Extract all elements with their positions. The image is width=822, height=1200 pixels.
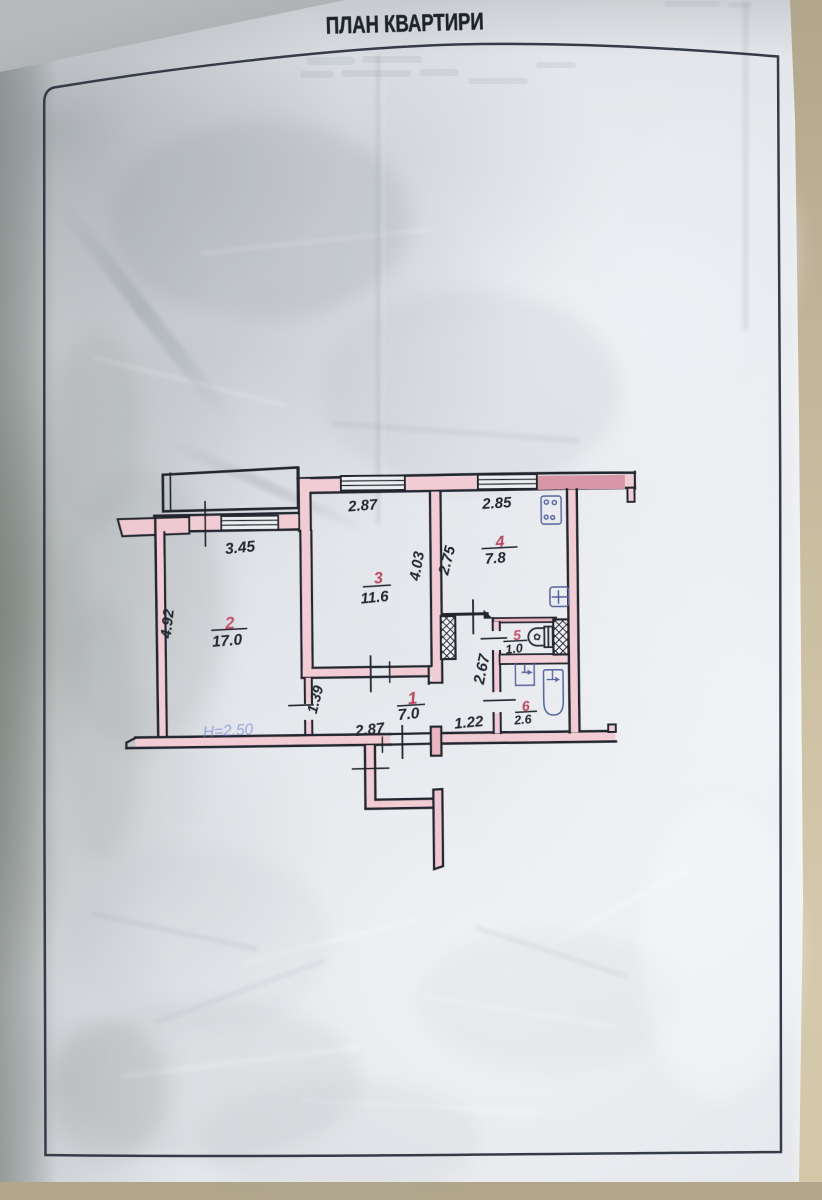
svg-text:ПЛАН КВАРТИРИ: ПЛАН КВАРТИРИ [325,8,484,39]
svg-text:2.67: 2.67 [471,651,494,686]
svg-text:3.45: 3.45 [224,538,256,558]
svg-text:4.03: 4.03 [406,550,428,583]
svg-text:H=2.50: H=2.50 [202,721,254,741]
svg-text:1.22: 1.22 [453,713,484,733]
svg-text:2.87: 2.87 [353,720,386,740]
svg-text:17.0: 17.0 [211,631,243,650]
svg-text:1.0: 1.0 [505,641,524,657]
svg-text:2.85: 2.85 [481,494,513,513]
svg-text:4.92: 4.92 [158,608,178,641]
svg-text:2.87: 2.87 [347,496,379,515]
svg-text:11.6: 11.6 [360,588,390,608]
svg-text:7.0: 7.0 [397,705,420,724]
svg-text:7.8: 7.8 [484,549,507,568]
svg-text:2.6: 2.6 [513,712,533,727]
